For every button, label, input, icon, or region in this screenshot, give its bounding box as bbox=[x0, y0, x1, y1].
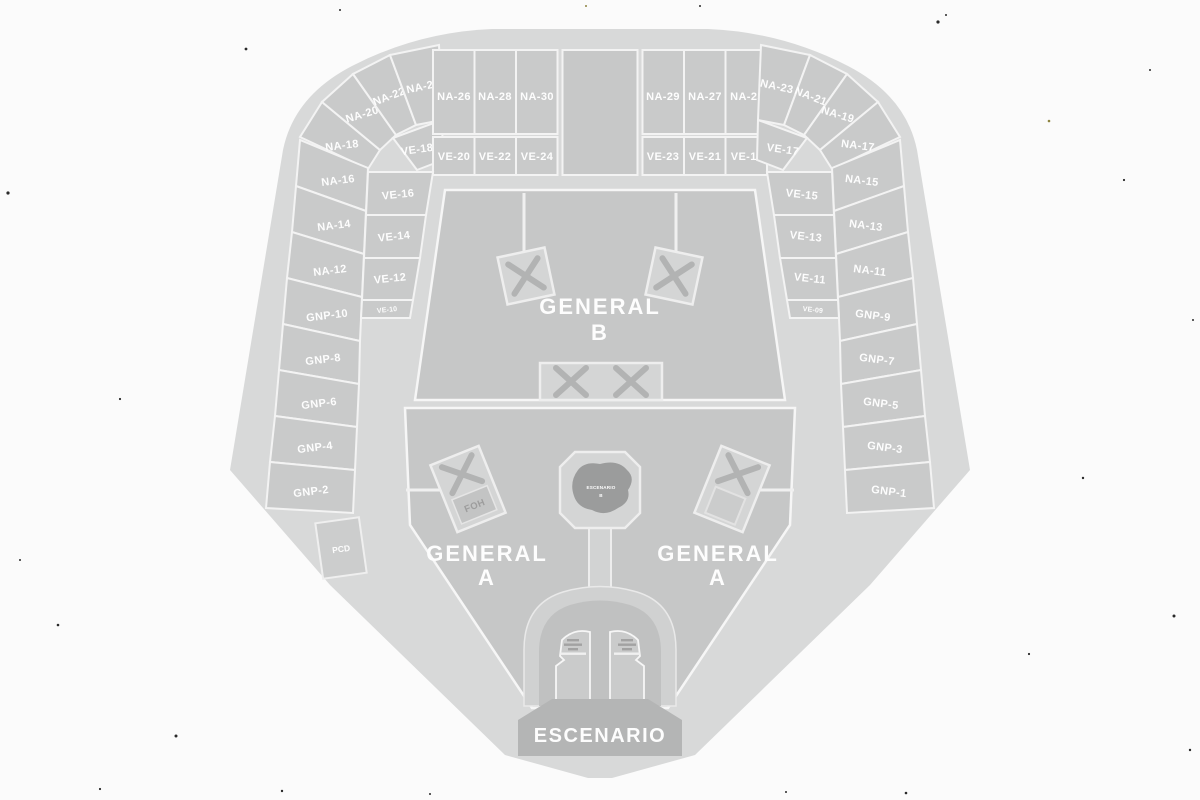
section-na-27[interactable]: NA-27 bbox=[684, 50, 726, 134]
section-ve-11[interactable]: VE-11 bbox=[780, 258, 838, 300]
section-gnp-2[interactable]: GNP-2 bbox=[266, 462, 355, 513]
svg-text:NA-26: NA-26 bbox=[437, 91, 471, 103]
b-stage: ESCENARIO B bbox=[560, 452, 640, 528]
general-a-left-label-line1: GENERAL bbox=[426, 541, 548, 566]
svg-text:NA-28: NA-28 bbox=[478, 91, 512, 103]
section-ve-12[interactable]: VE-12 bbox=[362, 258, 420, 300]
general-b-label-line2: B bbox=[591, 320, 609, 345]
svg-text:VE-23: VE-23 bbox=[647, 151, 680, 163]
svg-text:NA-29: NA-29 bbox=[646, 91, 680, 103]
section-ve-16[interactable]: VE-16 bbox=[366, 172, 433, 215]
section-ve-10[interactable]: VE-10 bbox=[361, 300, 413, 318]
svg-text:NA-27: NA-27 bbox=[688, 91, 722, 103]
b-stage-label-line1: ESCENARIO bbox=[586, 485, 615, 490]
section-na-29[interactable]: NA-29 bbox=[643, 50, 685, 134]
top-center-block bbox=[563, 50, 638, 175]
svg-text:VE-20: VE-20 bbox=[438, 151, 471, 163]
stage-door-right bbox=[610, 631, 644, 700]
stage-label: ESCENARIO bbox=[534, 725, 666, 747]
section-ve-20[interactable]: VE-20 bbox=[433, 137, 475, 175]
section-ve-14[interactable]: VE-14 bbox=[364, 215, 426, 258]
stage-door-left bbox=[556, 631, 590, 700]
svg-text:NA-30: NA-30 bbox=[520, 91, 554, 103]
mix-platform bbox=[540, 363, 662, 400]
seat-map-page: GENERAL B GENERAL A GENERAL A NA-18 NA-2… bbox=[0, 0, 1200, 800]
svg-text:VE-22: VE-22 bbox=[479, 151, 512, 163]
stage-arch bbox=[524, 587, 676, 707]
section-ve-09[interactable]: VE-09 bbox=[787, 300, 839, 318]
section-ve-15[interactable]: VE-15 bbox=[767, 172, 834, 215]
section-ve-13[interactable]: VE-13 bbox=[774, 215, 836, 258]
venue-map: GENERAL B GENERAL A GENERAL A NA-18 NA-2… bbox=[0, 0, 1200, 800]
stage: ESCENARIO bbox=[518, 699, 682, 756]
section-ve-22[interactable]: VE-22 bbox=[475, 137, 517, 175]
section-ve-23[interactable]: VE-23 bbox=[643, 137, 685, 175]
b-stage-label-line2: B bbox=[599, 493, 603, 498]
general-a-right-label-line2: A bbox=[709, 565, 727, 590]
general-a-right-label-line1: GENERAL bbox=[657, 541, 779, 566]
section-pcd[interactable]: PCD bbox=[315, 517, 366, 579]
section-na-30[interactable]: NA-30 bbox=[516, 50, 558, 134]
section-na-28[interactable]: NA-28 bbox=[475, 50, 517, 134]
section-ve-24[interactable]: VE-24 bbox=[516, 137, 558, 175]
svg-text:VE-21: VE-21 bbox=[689, 151, 722, 163]
general-b-label-line1: GENERAL bbox=[539, 294, 661, 319]
section-gnp-1[interactable]: GNP-1 bbox=[845, 462, 934, 513]
section-na-26[interactable]: NA-26 bbox=[433, 50, 475, 134]
general-a-left-label-line2: A bbox=[478, 565, 496, 590]
svg-text:VE-24: VE-24 bbox=[521, 151, 554, 163]
section-ve-21[interactable]: VE-21 bbox=[684, 137, 726, 175]
